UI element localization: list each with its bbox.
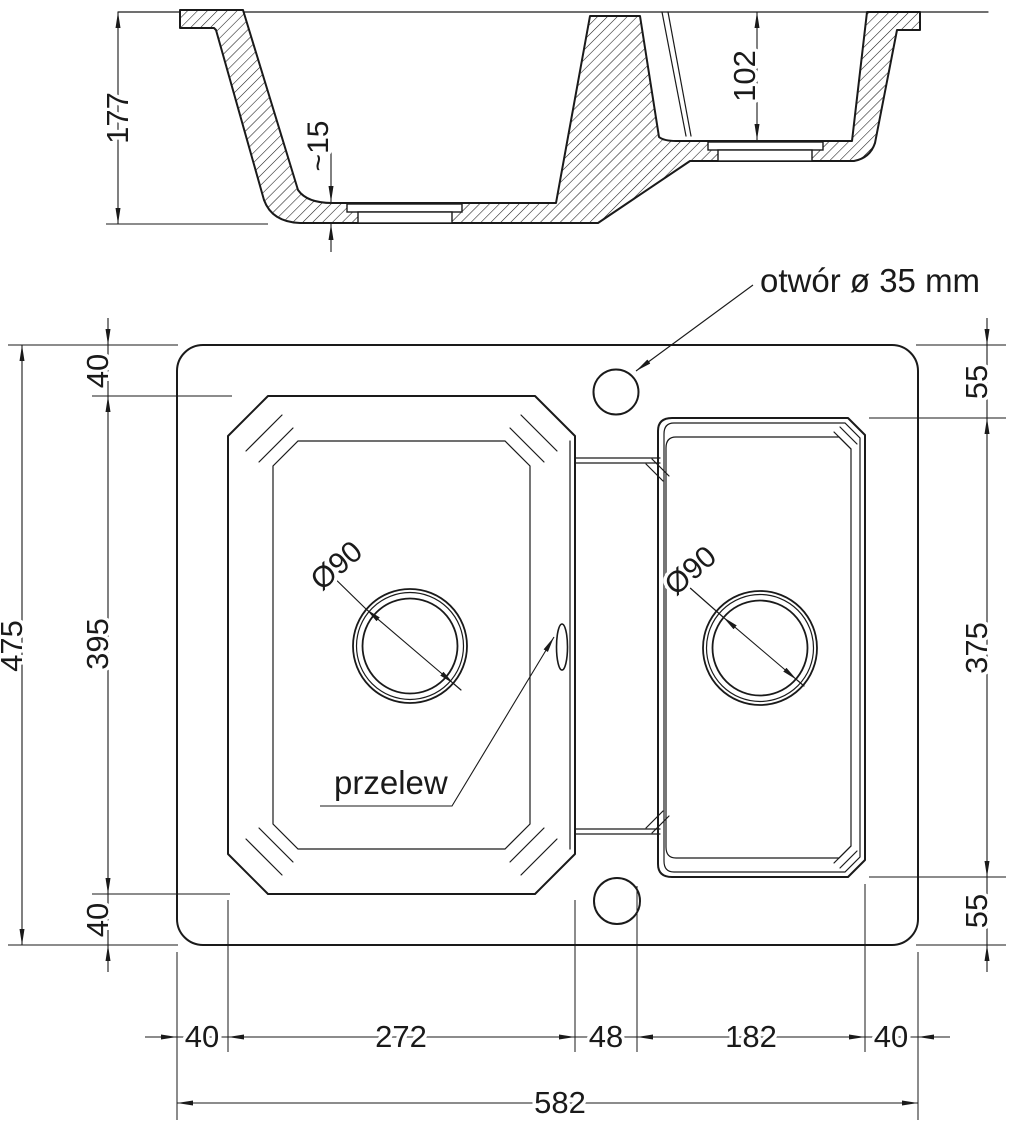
label-overflow: przelew xyxy=(334,764,448,801)
dim-top-margin-left: 40 xyxy=(80,354,115,388)
drawing-svg: 177 ~15 102 Ø90 xyxy=(0,0,1011,1131)
right-drain-recess-ledge xyxy=(708,142,823,150)
dim-bottom-right-margin: 40 xyxy=(874,1019,908,1054)
section-body-hatched xyxy=(180,10,920,223)
plan-view: Ø90 Ø90 xyxy=(0,262,1006,1120)
left-drain-recess xyxy=(358,212,452,223)
dim-bottom-margin-left: 40 xyxy=(80,903,115,937)
right-basin-corner-ribbons xyxy=(834,427,857,868)
small-bowl-wall-edge xyxy=(668,12,691,136)
second-hole xyxy=(594,878,640,924)
dim-depth-right: 102 xyxy=(727,50,762,102)
hole-note-leader xyxy=(636,285,753,371)
left-basin-rim xyxy=(228,396,575,894)
right-basin-rim-inner-edge xyxy=(664,423,860,872)
label-hole-note: otwór ø 35 mm xyxy=(760,262,980,299)
right-drain-recess xyxy=(718,150,812,161)
divider-ledges xyxy=(575,458,669,834)
dim-right-bottom-margin: 55 xyxy=(959,894,994,928)
small-bowl-wall-edge xyxy=(662,12,686,136)
dim-left-basin-height: 395 xyxy=(80,618,115,670)
dim-right-basin-width: 182 xyxy=(725,1019,777,1054)
bottom-dimension-chain: 40 272 48 182 40 582 xyxy=(145,884,950,1120)
dim-drain-left-diameter: Ø90 xyxy=(305,535,369,597)
dim-divider-width: 48 xyxy=(589,1019,623,1054)
dim-depth-left: 177 xyxy=(100,92,135,144)
dim-left-basin-width: 272 xyxy=(375,1019,427,1054)
overflow-hole xyxy=(557,624,568,670)
dim-total-width: 582 xyxy=(534,1085,586,1120)
left-dimension-chain: 475 40 395 40 xyxy=(0,318,232,972)
sink-technical-drawing: 177 ~15 102 Ø90 xyxy=(0,0,1011,1131)
left-drain: Ø90 xyxy=(305,535,467,703)
right-drain: Ø90 xyxy=(659,540,817,705)
dim-drain-right-diameter: Ø90 xyxy=(659,540,723,602)
tap-hole xyxy=(594,370,639,415)
dim-bottom-left-margin: 40 xyxy=(185,1019,219,1054)
right-basin-rim xyxy=(658,418,865,877)
dim-total-height: 475 xyxy=(0,620,29,672)
dim-right-top-margin: 55 xyxy=(959,365,994,399)
left-drain-recess-ledge xyxy=(347,204,462,212)
dim-floor-thickness: ~15 xyxy=(302,121,335,172)
cross-section-view: 177 ~15 102 xyxy=(100,10,988,252)
right-dimension-chain: 55 375 55 xyxy=(869,318,1006,972)
dim-right-basin-height: 375 xyxy=(959,622,994,674)
